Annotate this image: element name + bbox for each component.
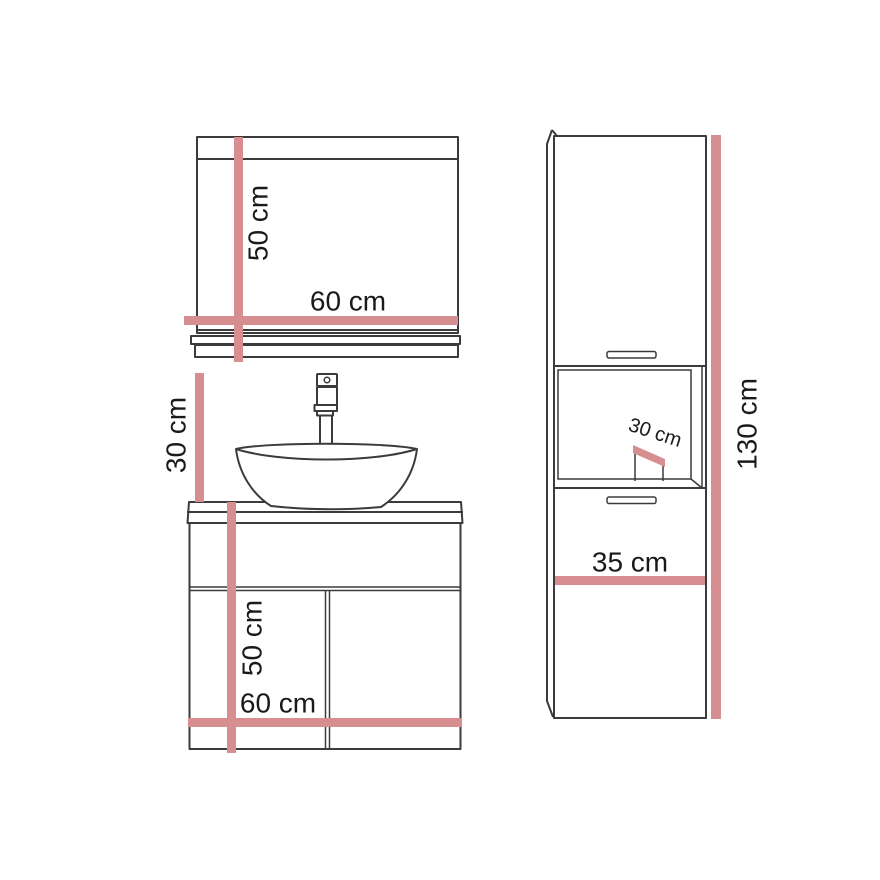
vanity-height-label: 50 cm <box>237 600 268 676</box>
cabinet-height-dimension-line <box>711 135 721 719</box>
vanity-width-label: 60 cm <box>240 688 316 719</box>
basin-height-label: 30 cm <box>161 397 192 473</box>
mirror-width-dimension-line <box>184 316 458 325</box>
faucet-spout-lip <box>317 411 333 416</box>
vessel-basin <box>236 444 417 510</box>
tall-cabinet <box>547 130 706 718</box>
faucet <box>315 374 338 449</box>
faucet-cap <box>317 374 337 386</box>
vanity-height-dimension-line <box>227 502 236 753</box>
diagram-svg: 50 cm 60 cm 30 cm 50 cm 60 cm 30 cm 35 c… <box>0 0 880 880</box>
faucet-body <box>317 387 337 405</box>
basin-bowl <box>236 444 417 510</box>
cabinet-height-label: 130 cm <box>732 378 763 470</box>
mirror-shelf-top <box>191 336 460 344</box>
mirror-height-label: 50 cm <box>243 185 274 261</box>
vanity-width-dimension-line <box>188 718 462 727</box>
cabinet-width-label: 35 cm <box>592 547 668 578</box>
mirror-width-label: 60 cm <box>310 286 386 317</box>
tall-cabinet-side-panel <box>547 130 553 717</box>
bathroom-furniture-dimension-diagram: 50 cm 60 cm 30 cm 50 cm 60 cm 30 cm 35 c… <box>0 0 880 880</box>
basin-height-dimension-line <box>195 373 204 502</box>
